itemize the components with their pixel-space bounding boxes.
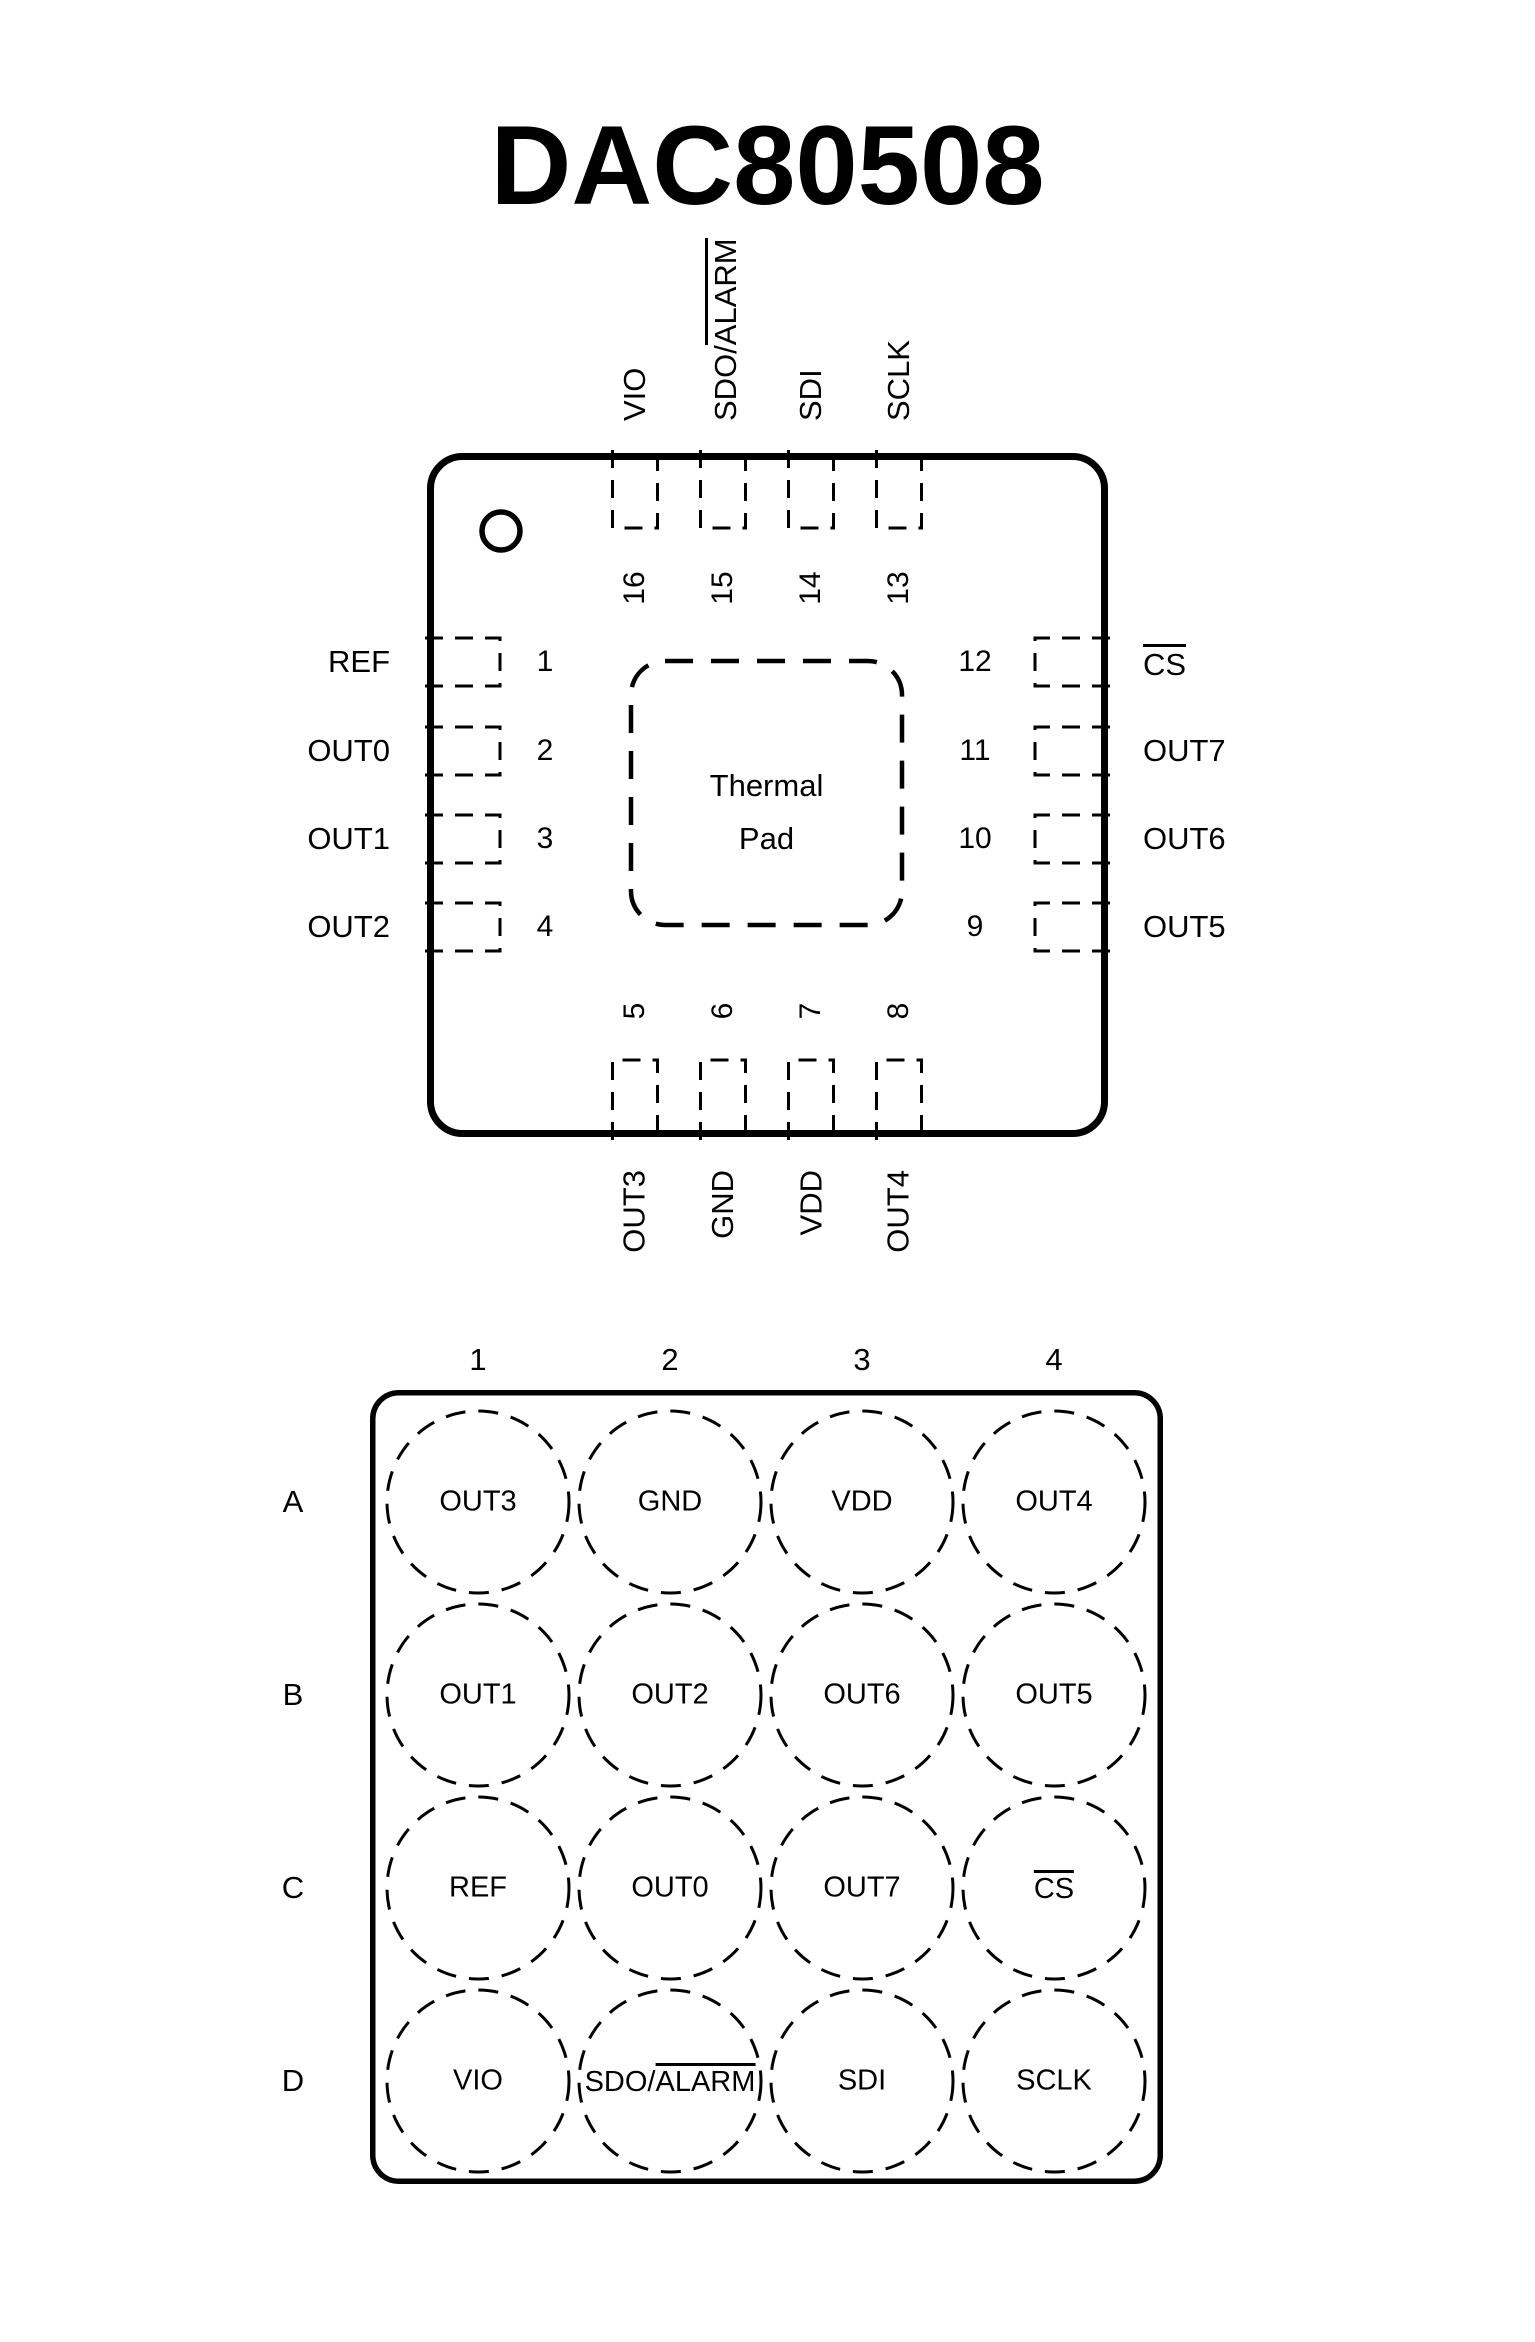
qfn-pin-label-cs-overline: CS — [1143, 644, 1186, 680]
qfn-pin-label-ref: REF — [328, 644, 390, 680]
qfn-pin-box-2 — [425, 727, 500, 775]
qfn-pin-number-11: 11 — [959, 733, 990, 769]
qfn-pin-box-6 — [701, 1060, 746, 1140]
bga-ball-label-d4: SCLK — [1016, 2065, 1092, 2098]
qfn-pin-number-12: 12 — [958, 644, 991, 680]
qfn-pin-label-out2: OUT2 — [307, 909, 390, 945]
qfn-pin-label-sdi: SDI — [793, 369, 829, 421]
bga-row-header-a: A — [283, 1484, 304, 1520]
qfn-pin-label-out4: OUT4 — [881, 1170, 917, 1253]
qfn-pin-number-2: 2 — [537, 733, 554, 769]
qfn-pin-label-sclk: SCLK — [881, 340, 917, 421]
thermal-pad-line2: Pad — [629, 812, 904, 865]
qfn-pin-label-out3: OUT3 — [617, 1170, 653, 1253]
bga-ball-label-c2: OUT0 — [631, 1872, 708, 1905]
bga-ball-label-b4: OUT5 — [1015, 1679, 1092, 1712]
qfn-pin-number-3: 3 — [537, 821, 554, 857]
bga-ball-label-d3: SDI — [838, 2065, 886, 2098]
bga-ball-label-d2: SDO/ALARM — [585, 2063, 756, 2099]
bga-ball-label-c1: REF — [449, 1872, 507, 1905]
bga-ball-label-a4: OUT4 — [1015, 1486, 1092, 1519]
qfn-pin-number-13: 13 — [881, 553, 917, 623]
qfn-pin-box-9 — [1035, 903, 1110, 951]
qfn-pin-number-6: 6 — [705, 976, 741, 1046]
qfn-pin1-indicator-dot — [482, 512, 520, 550]
qfn-pin-number-16: 16 — [617, 553, 653, 623]
qfn-pin-label-out5: OUT5 — [1143, 909, 1226, 945]
thermal-pad-text: Thermal Pad — [629, 759, 904, 865]
bga-row-header-d: D — [282, 2063, 304, 2099]
qfn-pin-box-7 — [789, 1060, 834, 1140]
bga-col-header-3: 3 — [853, 1342, 870, 1378]
bga-row-header-c: C — [282, 1870, 304, 1906]
qfn-pin-label-gnd: GND — [705, 1170, 741, 1239]
bga-col-header-4: 4 — [1045, 1342, 1062, 1378]
bga-ball-label-c3: OUT7 — [823, 1872, 900, 1905]
qfn-pin-box-11 — [1035, 727, 1110, 775]
qfn-pin-box-15 — [701, 450, 746, 528]
qfn-pin-number-9: 9 — [967, 909, 984, 945]
bga-ball-label-a2: GND — [638, 1486, 702, 1519]
qfn-pin-number-7: 7 — [793, 976, 829, 1046]
bga-col-header-1: 1 — [469, 1342, 486, 1378]
qfn-pin-box-16 — [613, 450, 658, 528]
qfn-pin-number-4: 4 — [537, 909, 554, 945]
qfn-pin-box-10 — [1035, 815, 1110, 863]
qfn-pin-box-13 — [877, 450, 922, 528]
diagram-strokes — [0, 0, 1535, 2342]
qfn-pin-box-1 — [425, 638, 500, 686]
qfn-pin-number-10: 10 — [958, 821, 991, 857]
qfn-pin-label-sdo-alarm-overline: ALARM — [705, 238, 741, 345]
qfn-pin-number-14: 14 — [793, 553, 829, 623]
qfn-pin-label-vio: VIO — [617, 368, 653, 421]
bga-ball-label-d2-overline: ALARM — [655, 2063, 755, 2097]
qfn-pin-label-out7: OUT7 — [1143, 733, 1226, 769]
bga-ball-label-a1: OUT3 — [439, 1486, 516, 1519]
bga-col-header-2: 2 — [661, 1342, 678, 1378]
bga-ball-label-b3: OUT6 — [823, 1679, 900, 1712]
qfn-pin-label-sdo-alarm: SDO/ALARM — [705, 238, 741, 421]
qfn-pin-number-15: 15 — [705, 553, 741, 623]
qfn-pin-label-out0: OUT0 — [307, 733, 390, 769]
bga-ball-label-c4: CS — [1034, 1870, 1074, 1906]
bga-row-header-b: B — [283, 1677, 304, 1713]
qfn-pin-box-14 — [789, 450, 834, 528]
qfn-pin-number-1: 1 — [537, 644, 554, 680]
qfn-pin-box-5 — [613, 1060, 658, 1140]
qfn-pin-number-8: 8 — [881, 976, 917, 1046]
qfn-pin-number-5: 5 — [617, 976, 653, 1046]
qfn-pin-label-vdd: VDD — [793, 1170, 829, 1235]
bga-ball-label-c4-overline: CS — [1034, 1870, 1074, 1904]
qfn-pin-box-12 — [1035, 638, 1110, 686]
qfn-pin-box-8 — [877, 1060, 922, 1140]
bga-ball-label-d1: VIO — [453, 2065, 503, 2098]
qfn-pin-label-out6: OUT6 — [1143, 821, 1226, 857]
bga-ball-label-b2: OUT2 — [631, 1679, 708, 1712]
page-title: DAC80508 — [0, 104, 1535, 226]
thermal-pad-line1: Thermal — [629, 759, 904, 812]
bga-ball-label-b1: OUT1 — [439, 1679, 516, 1712]
qfn-pin-label-out1: OUT1 — [307, 821, 390, 857]
qfn-pin-label-cs: CS — [1143, 644, 1186, 680]
bga-ball-label-a3: VDD — [831, 1486, 892, 1519]
pinout-page: DAC80508 Thermal Pad 16VIO15SDO/ALARM14S… — [0, 0, 1535, 2342]
qfn-pin-box-4 — [425, 903, 500, 951]
qfn-pin-box-3 — [425, 815, 500, 863]
